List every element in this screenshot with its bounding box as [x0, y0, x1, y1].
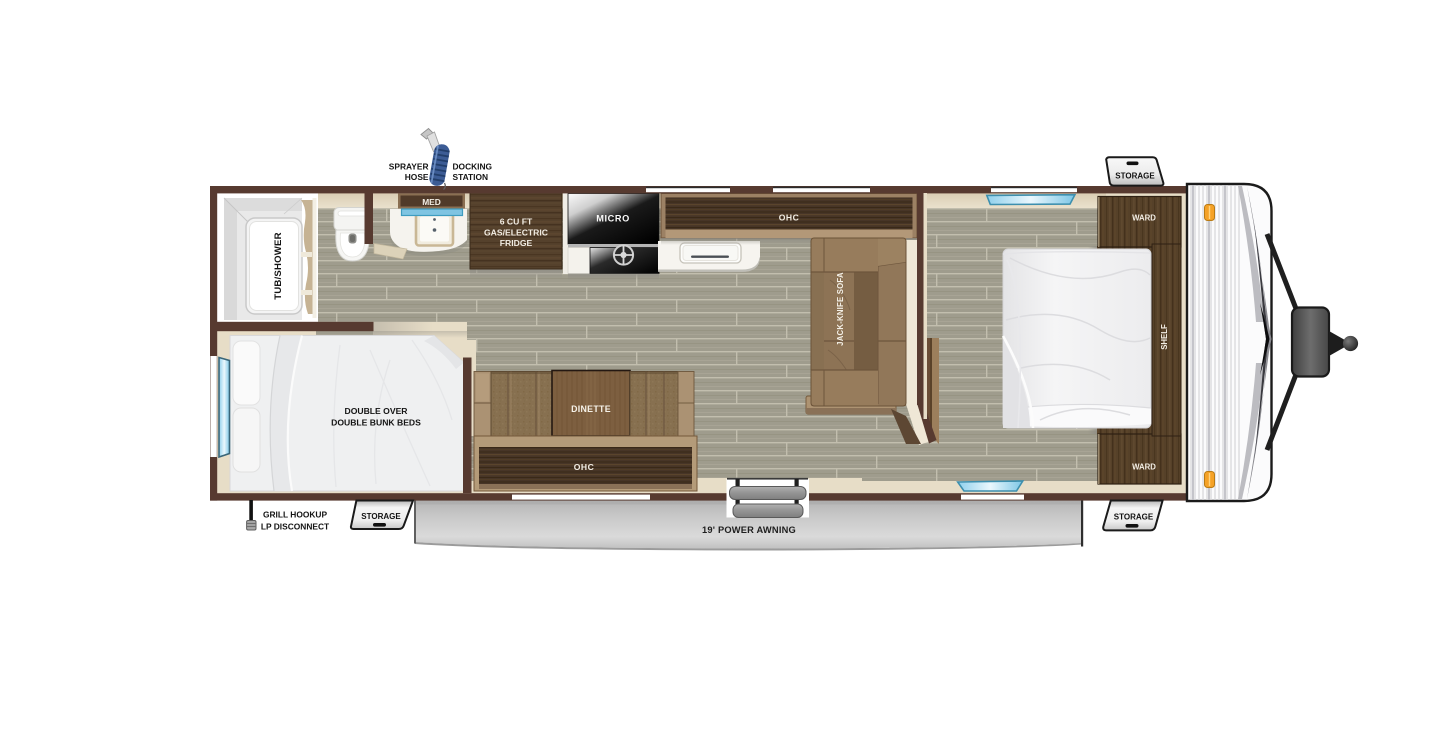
svg-text:SPRAYER: SPRAYER [389, 162, 429, 172]
svg-text:MED: MED [422, 197, 441, 207]
svg-text:STORAGE: STORAGE [1114, 513, 1154, 522]
svg-text:STORAGE: STORAGE [361, 512, 401, 521]
svg-text:HOSE: HOSE [405, 172, 429, 182]
svg-text:WARD: WARD [1132, 214, 1156, 223]
svg-text:FRIDGE: FRIDGE [500, 238, 533, 248]
svg-text:MICRO: MICRO [596, 214, 630, 224]
svg-text:WARD: WARD [1132, 463, 1156, 472]
svg-text:JACK-KNIFE SOFA: JACK-KNIFE SOFA [836, 272, 845, 346]
svg-text:19' POWER AWNING: 19' POWER AWNING [702, 525, 796, 535]
svg-text:SHELF: SHELF [1160, 324, 1169, 350]
svg-text:DOUBLE OVER: DOUBLE OVER [344, 406, 408, 416]
svg-text:LP DISCONNECT: LP DISCONNECT [261, 521, 330, 531]
svg-text:STORAGE: STORAGE [1115, 171, 1155, 180]
svg-text:DINETTE: DINETTE [571, 404, 611, 414]
svg-text:GRILL HOOKUP: GRILL HOOKUP [263, 509, 327, 519]
svg-text:6 CU FT: 6 CU FT [500, 217, 533, 227]
svg-text:OHC: OHC [779, 213, 800, 223]
svg-text:STATION: STATION [453, 172, 489, 182]
svg-text:GAS/ELECTRIC: GAS/ELECTRIC [484, 227, 548, 237]
svg-text:DOUBLE BUNK BEDS: DOUBLE BUNK BEDS [331, 418, 421, 428]
svg-text:TUB/SHOWER: TUB/SHOWER [273, 232, 284, 300]
svg-text:OHC: OHC [574, 462, 595, 472]
svg-text:DOCKING: DOCKING [453, 162, 493, 172]
